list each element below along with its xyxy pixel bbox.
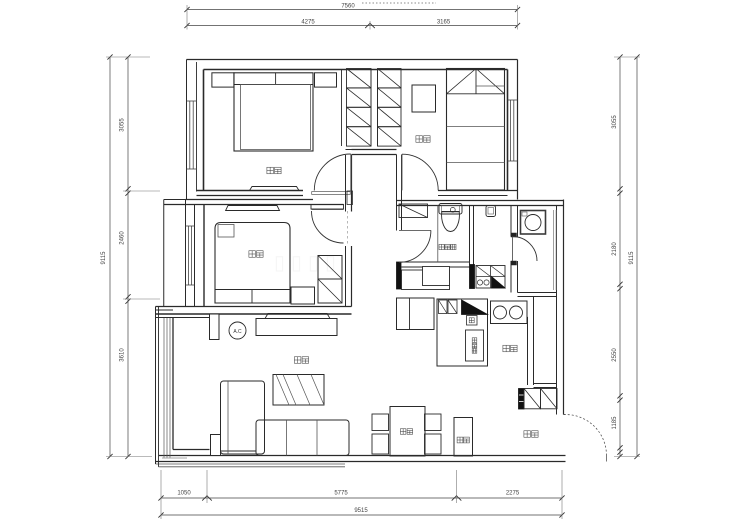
svg-text:2460: 2460 <box>120 231 126 245</box>
svg-text:9115: 9115 <box>101 251 107 265</box>
svg-text:3055: 3055 <box>612 115 618 129</box>
svg-text:▯▯▯▯: ▯▯▯▯ <box>274 252 342 274</box>
svg-text:1050: 1050 <box>177 491 191 497</box>
svg-text:1185: 1185 <box>612 416 618 430</box>
svg-text:A.C: A.C <box>233 329 242 335</box>
svg-text:7560: 7560 <box>341 4 355 10</box>
svg-text:3610: 3610 <box>120 348 126 362</box>
svg-text:3165: 3165 <box>437 20 451 26</box>
svg-text:4275: 4275 <box>301 20 315 26</box>
svg-text:5775: 5775 <box>334 491 348 497</box>
svg-text:2275: 2275 <box>506 491 520 497</box>
svg-text:2180: 2180 <box>612 242 618 256</box>
svg-text:2550: 2550 <box>612 348 618 362</box>
svg-text:9115: 9115 <box>629 251 635 265</box>
svg-text:3055: 3055 <box>120 118 126 132</box>
svg-text:9515: 9515 <box>354 508 368 514</box>
